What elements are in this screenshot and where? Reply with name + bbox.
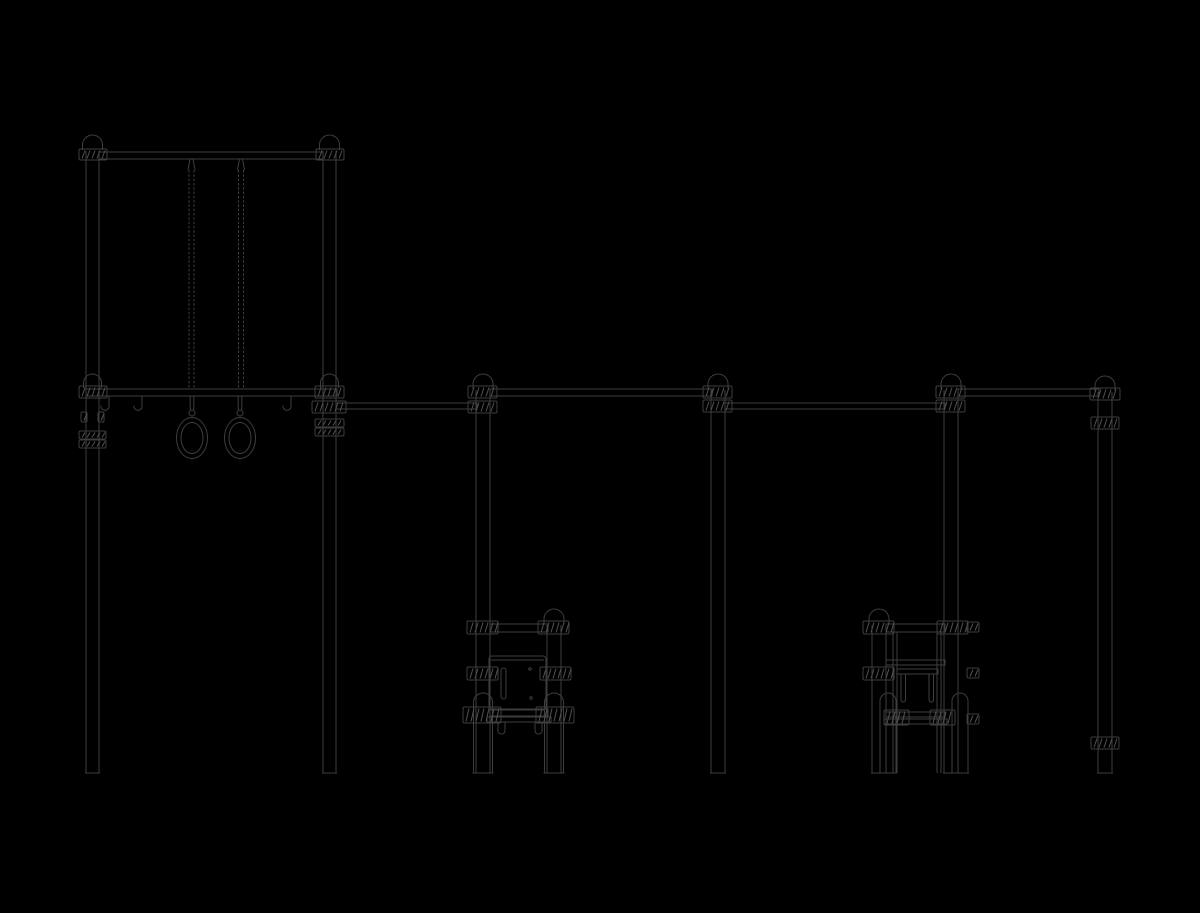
clamp-hatch: [102, 442, 105, 447]
clamp-hatch: [92, 442, 95, 447]
prong-tube: [901, 674, 906, 702]
bench-b-front-post: [871, 625, 887, 773]
clamp-hatch: [1094, 419, 1097, 428]
ring-inner: [229, 423, 251, 454]
rail-post-2: [710, 390, 726, 773]
clamp-hatch: [948, 712, 951, 724]
clamp-hatch: [470, 669, 473, 679]
bench-b-rail-2: [897, 669, 938, 674]
bench-b-prong: [901, 674, 906, 702]
pipe-clamp: [467, 667, 498, 680]
clamp-hatch: [975, 670, 978, 677]
clamp-hatch: [959, 402, 962, 411]
clamp-hatch: [315, 403, 318, 412]
rail-3: [725, 403, 945, 409]
frame-right-post: [322, 151, 337, 773]
clamp-hatch: [87, 151, 90, 159]
clamp-hatch: [1108, 390, 1111, 399]
clamp-hatch: [1114, 419, 1117, 428]
clamp-hatch: [721, 402, 724, 411]
clamp-hatch: [481, 403, 484, 412]
clamp-hatch: [970, 670, 973, 677]
clamp-hatch: [716, 402, 719, 411]
clamp-hatch: [721, 388, 724, 397]
rail-1: [336, 403, 477, 409]
bench-a-hanger: [498, 722, 505, 734]
clamp-hatch: [328, 430, 331, 435]
hook-shape: [283, 396, 291, 410]
pullup-top-bar: [99, 152, 323, 159]
clamp-hatch: [564, 709, 567, 722]
chain-connector: [243, 159, 245, 170]
ring-chain-left: [188, 159, 195, 389]
clamp-hatch: [551, 623, 554, 633]
pipe-clamp: [703, 400, 732, 412]
bench-a-post-cap: [544, 609, 564, 624]
frame-left-cap: [83, 135, 103, 150]
clamp-hatch: [87, 442, 90, 447]
clamp-hatch: [975, 624, 978, 631]
pipe-clamp: [1091, 417, 1119, 429]
bench-b-rail-1: [886, 660, 945, 665]
clamp-hatch: [881, 623, 884, 633]
clamp-hatch: [866, 669, 869, 679]
clamp-hatch: [486, 403, 489, 412]
clamp-hatch: [970, 624, 973, 631]
clamp-hatch: [338, 430, 341, 435]
clamp-hatch: [325, 403, 328, 412]
pipe-clamp: [315, 428, 344, 436]
pipe-clamp: [79, 440, 106, 448]
prong-tube: [929, 674, 934, 702]
bench-b-top-bar: [886, 624, 945, 632]
bench-a-front-post: [546, 625, 562, 773]
clamp-hatch: [491, 403, 494, 412]
clamp-hatch: [481, 709, 484, 722]
gym-ring-right: [225, 396, 256, 459]
frame-right-cap: [320, 135, 340, 150]
pipe-clamp: [536, 707, 574, 723]
bench-b-rear-leg-left: [880, 693, 896, 707]
post-dome-cap: [320, 135, 340, 150]
panel-bolt-dot: [530, 697, 533, 700]
post-dome-cap: [708, 374, 728, 389]
pipe-clamp: [967, 668, 979, 678]
bench-b-rail-1: [886, 660, 945, 665]
panel-slot: [501, 668, 506, 699]
pipe-clamp: [79, 149, 107, 160]
chain-connector: [238, 159, 240, 170]
ring-inner: [181, 423, 203, 454]
clamp-hatch: [486, 388, 489, 397]
bench-b-post-cap: [869, 609, 889, 624]
chain-connector: [193, 159, 195, 170]
pipe-clamp: [863, 667, 894, 680]
clamp-hatch: [471, 403, 474, 412]
clamp-hatch: [92, 433, 95, 438]
clamp-hatch: [876, 669, 879, 679]
rail-post-3-cap: [941, 374, 961, 389]
clamp-hatch: [876, 623, 879, 633]
clamp-hatch: [328, 421, 331, 426]
pullup-top-bar: [99, 152, 323, 159]
clamp-hatch: [553, 669, 556, 679]
calisthenics-rig-line-drawing: [0, 0, 1200, 913]
pipe-clamp: [316, 149, 344, 160]
clamp-hatch: [480, 623, 483, 633]
rings-bar: [86, 389, 337, 396]
clamp-hatch: [82, 442, 85, 447]
pipe-clamp: [967, 622, 979, 632]
bench-a-top-bar: [490, 624, 548, 632]
clamp-hatch: [1103, 390, 1106, 399]
bench-b-inner-leg: [937, 632, 941, 773]
clamp-hatch: [556, 623, 559, 633]
hanger-shape: [498, 722, 505, 734]
clamp-hatch: [1104, 419, 1107, 428]
clamp-hatch: [329, 151, 332, 159]
clamp-hatch: [1099, 739, 1102, 748]
pipe-clamp: [540, 667, 571, 680]
clamp-hatch: [970, 716, 973, 723]
rail-1: [336, 403, 477, 409]
clamp-hatch: [975, 716, 978, 723]
rail-3: [725, 403, 945, 409]
rail-2: [490, 389, 712, 396]
clamp-hatch: [87, 433, 90, 438]
rail-4: [958, 389, 1099, 396]
post-dome-cap: [544, 609, 564, 624]
rear-leg-arch: [879, 693, 897, 773]
accessory-hook: [134, 396, 142, 410]
clamp-hatch: [563, 669, 566, 679]
clamp-hatch: [554, 709, 557, 722]
panel-outline: [489, 656, 546, 710]
pipe-clamp: [315, 419, 344, 427]
rail-2: [490, 389, 712, 396]
clamp-hatch: [82, 151, 85, 159]
clamp-hatch: [706, 402, 709, 411]
rail-post-1-cap: [473, 374, 493, 389]
post-dome-cap: [473, 374, 493, 389]
clamp-hatch: [960, 623, 963, 633]
bench-b-rail-2: [897, 669, 938, 674]
pipe-clamp: [79, 431, 106, 439]
ring-link: [189, 410, 195, 416]
bench-a-top-bar: [490, 624, 548, 632]
clamp-hatch: [548, 669, 551, 679]
post-dome-cap: [941, 374, 961, 389]
clamp-hatch: [1104, 739, 1107, 748]
clamp-hatch: [318, 421, 321, 426]
pipe-clamp: [967, 714, 979, 724]
bench-a-board-panel: [489, 656, 546, 710]
clamp-hatch: [480, 669, 483, 679]
drawing-canvas: [0, 0, 1200, 913]
clamp-hatch: [1099, 419, 1102, 428]
hook-shape: [134, 396, 142, 410]
chain-connector: [188, 159, 190, 170]
rail-post-4: [1097, 392, 1113, 773]
clamp-hatch: [569, 709, 572, 722]
clamp-hatch: [1094, 739, 1097, 748]
clamp-hatch: [954, 388, 957, 397]
rear-leg-arch: [951, 693, 969, 773]
clamp-hatch: [338, 388, 341, 397]
panel-bolt-dot: [529, 668, 532, 671]
pipe-clamp: [936, 400, 965, 412]
clamp-hatch: [330, 403, 333, 412]
clamp-hatch: [324, 151, 327, 159]
clamp-hatch: [954, 402, 957, 411]
frame-left-post: [85, 151, 100, 773]
rail-post-2-cap: [708, 374, 728, 389]
ring-chain-right: [238, 159, 245, 389]
clamp-hatch: [881, 669, 884, 679]
clamp-hatch: [340, 403, 343, 412]
clamp-hatch: [716, 388, 719, 397]
accessory-hook: [283, 396, 291, 410]
bench-b-top-bar: [886, 624, 945, 632]
clamp-hatch: [92, 151, 95, 159]
bench-a-hanger: [535, 722, 542, 734]
post-dome-cap: [869, 609, 889, 624]
clamp-hatch: [466, 709, 469, 722]
pipe-clamp: [1091, 737, 1119, 749]
rail-4: [958, 389, 1099, 396]
clamp-hatch: [339, 151, 342, 159]
clamp-hatch: [1114, 739, 1117, 748]
clamp-hatch: [318, 430, 321, 435]
gym-ring-left: [177, 396, 208, 459]
clamp-hatch: [481, 388, 484, 397]
ring-link: [237, 410, 243, 416]
clamp-hatch: [102, 433, 105, 438]
bench-b-rear-leg-right: [952, 693, 968, 707]
clamp-hatch: [866, 623, 869, 633]
clamp-hatch: [470, 623, 473, 633]
post-dome-cap: [83, 135, 103, 150]
clamp-hatch: [82, 433, 85, 438]
clamp-hatch: [950, 623, 953, 633]
bench-b-prong: [929, 674, 934, 702]
hanger-shape: [535, 722, 542, 734]
rings-bar: [86, 389, 337, 396]
clamp-hatch: [485, 669, 488, 679]
clamp-hatch: [82, 388, 85, 397]
clamp-hatch: [949, 388, 952, 397]
clamp-hatch: [949, 402, 952, 411]
clamp-hatch: [338, 421, 341, 426]
clamp-hatch: [485, 623, 488, 633]
